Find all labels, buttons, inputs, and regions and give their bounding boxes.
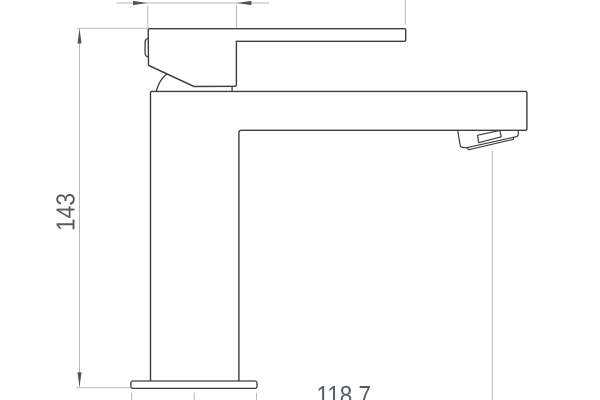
- svg-text:143: 143: [51, 193, 81, 231]
- svg-text:118.7: 118.7: [317, 380, 372, 400]
